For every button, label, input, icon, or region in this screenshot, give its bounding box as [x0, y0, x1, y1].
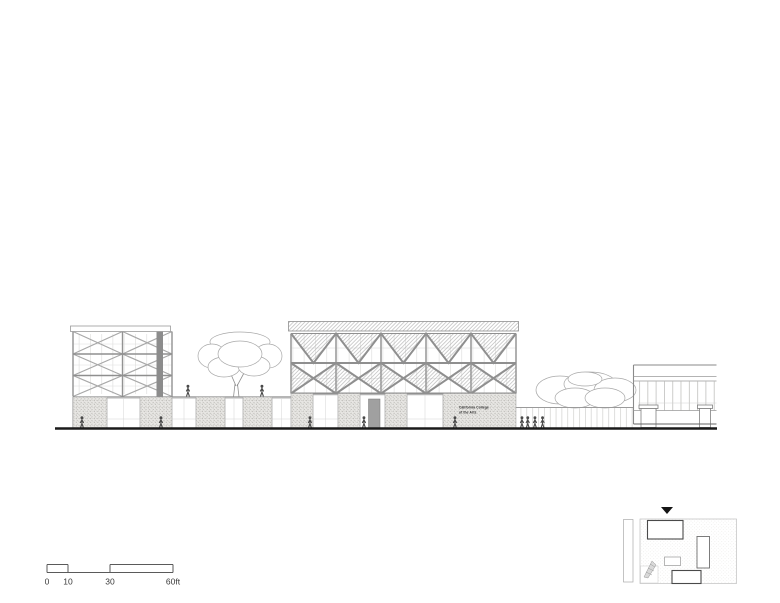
site-elevation: California College of the Arts: [55, 322, 717, 429]
entry-door: [369, 399, 381, 428]
tree-canopy: [218, 341, 262, 367]
center-building: California College of the Arts: [289, 322, 519, 429]
person-figure: [186, 385, 189, 396]
scale-label-30: 30: [105, 577, 115, 587]
left-building-parapet: [71, 326, 171, 332]
elevation-sheet: California College of the Arts: [0, 0, 780, 603]
key-plan-building-highlighted-bottom: [672, 571, 701, 584]
right-building: [634, 365, 717, 428]
key-plan-building-small: [665, 557, 681, 566]
scale-bar: 0 10 30 60ft: [45, 565, 181, 587]
shrub-canopy: [568, 372, 602, 386]
elevation-canvas: California College of the Arts: [0, 0, 780, 603]
center-building-ground-floor: California College of the Arts: [291, 394, 516, 429]
building-sign-line2: of the Arts: [459, 411, 477, 415]
key-plan-building-right: [697, 537, 710, 569]
right-building-fascia: [634, 377, 717, 382]
shrub-tree: [536, 372, 636, 408]
person-figure: [260, 385, 263, 396]
left-building: [71, 326, 173, 397]
scale-bar-shape: [47, 565, 173, 573]
scale-label-0: 0: [45, 577, 50, 587]
center-building-parapet: [289, 322, 519, 332]
building-sign-line1: California College: [459, 406, 489, 410]
key-plan: [624, 507, 737, 584]
left-building-core-shaft: [157, 332, 164, 397]
street-tree: [198, 332, 282, 397]
view-direction-marker: [661, 507, 673, 514]
podium-ground-floor: [73, 397, 291, 428]
key-plan-building-highlighted-top: [648, 521, 684, 540]
scale-label-60ft: 60ft: [166, 577, 181, 587]
key-plan-street-strip: [624, 520, 634, 583]
scale-label-10: 10: [63, 577, 73, 587]
